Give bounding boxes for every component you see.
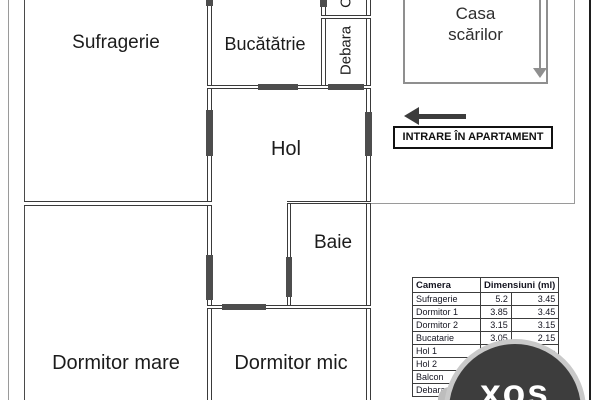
wall-main-vertical	[207, 0, 212, 400]
wall-bucatarie-debara	[321, 0, 326, 88]
plan-right-border	[589, 0, 591, 400]
wall-baie-top	[287, 201, 371, 204]
table-row: Dormitor 2 3.15 3.15	[413, 319, 559, 332]
balcony-edge-line	[8, 0, 9, 400]
col-header-camera: Camera	[413, 278, 481, 293]
wall-right-outer	[366, 0, 371, 400]
col-header-dimensiuni: Dimensiuni (ml)	[481, 278, 559, 293]
entrance-left-arrow-icon	[418, 114, 466, 119]
door-sufragerie-hol	[206, 110, 213, 156]
table-row: Sufragerie 5.2 3.45	[413, 293, 559, 306]
stairs-down-arrow-icon	[539, 0, 541, 70]
door-opening-top-divider	[320, 0, 327, 7]
apartment-floor-plan: Sufragerie Bucătătrie Debara C Hol Baie …	[0, 0, 600, 400]
door-apartment-entrance	[365, 112, 372, 156]
room-label-baie: Baie	[293, 232, 373, 254]
room-label-dormitor-mare: Dormitor mare	[24, 352, 208, 375]
entrance-label-box: INTRARE ÎN APARTAMENT	[393, 126, 553, 149]
stairwell-box: Casa scărilor	[403, 0, 548, 84]
table-header-row: Camera Dimensiuni (ml)	[413, 278, 559, 293]
door-dormitor-mic	[222, 304, 266, 310]
watermark-logo-text: xos	[444, 372, 586, 400]
room-label-hol: Hol	[236, 138, 336, 161]
room-label-bucatarie: Bucătătrie	[212, 34, 318, 55]
table-row: Dormitor 1 3.85 3.45	[413, 306, 559, 319]
room-label-debara: Debara	[338, 11, 355, 91]
stairwell-label: Casa scărilor	[405, 3, 546, 45]
room-label-dormitor-mic: Dormitor mic	[212, 352, 370, 375]
stairs-down-arrowhead-icon	[533, 68, 547, 78]
wall-left-outer	[24, 0, 25, 400]
wall-mid-left	[24, 201, 212, 206]
door-dormitor-mare	[206, 255, 213, 300]
door-opening-top-main	[206, 0, 213, 6]
room-label-sufragerie: Sufragerie	[24, 32, 208, 54]
room-label-partial-top: C	[338, 0, 355, 19]
landing-right-line	[574, 0, 575, 204]
entrance-left-arrowhead-icon	[404, 107, 419, 125]
landing-bottom-line	[371, 203, 575, 204]
door-bucatarie	[258, 84, 298, 90]
door-baie	[286, 257, 292, 297]
